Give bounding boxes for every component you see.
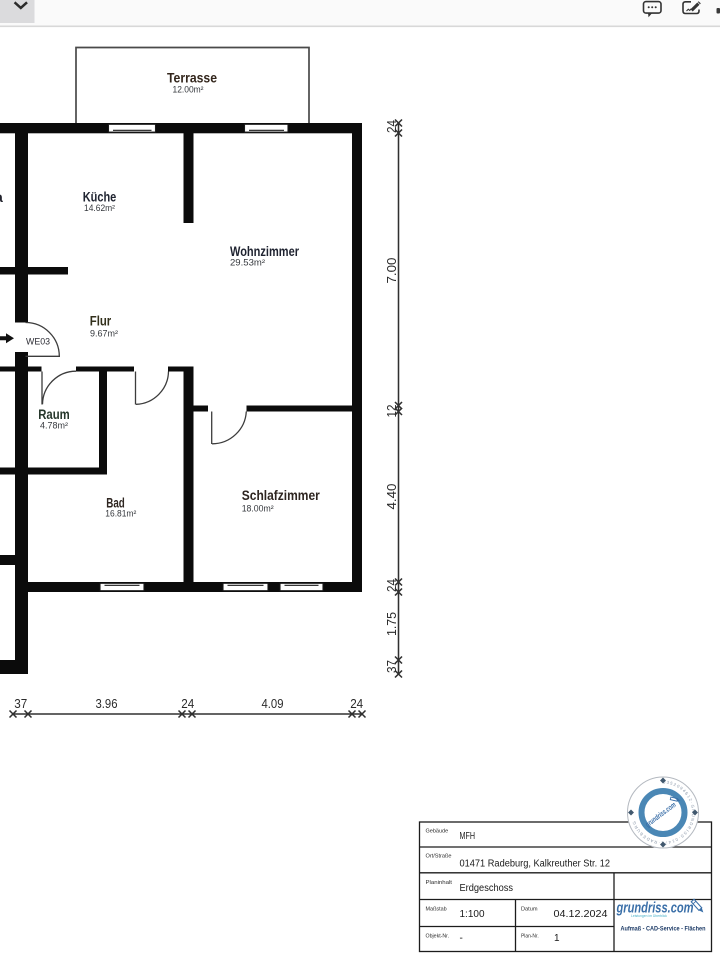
svg-text:4.09: 4.09 bbox=[262, 697, 284, 711]
svg-text:Maßstab: Maßstab bbox=[426, 907, 447, 913]
svg-text:24: 24 bbox=[350, 697, 363, 711]
svg-text:Aufmaß - CAD-Service - Flächen: Aufmaß - CAD-Service - Flächen bbox=[621, 926, 706, 933]
svg-text:WE03: WE03 bbox=[26, 337, 50, 347]
svg-text:4.40: 4.40 bbox=[385, 483, 399, 509]
svg-text:9.67m²: 9.67m² bbox=[90, 328, 118, 338]
svg-text:29.53m²: 29.53m² bbox=[230, 258, 265, 268]
svg-text:-: - bbox=[460, 933, 463, 944]
svg-text:Terrasse: Terrasse bbox=[167, 69, 217, 85]
svg-text:12: 12 bbox=[385, 404, 399, 417]
svg-text:04.12.2024: 04.12.2024 bbox=[554, 909, 608, 920]
svg-text:Gebäude: Gebäude bbox=[426, 829, 449, 835]
svg-text:24: 24 bbox=[385, 120, 399, 133]
svg-text:1: 1 bbox=[554, 933, 560, 944]
svg-text:Planinhalt: Planinhalt bbox=[426, 880, 453, 886]
svg-text:Leistungen im Überblick: Leistungen im Überblick bbox=[631, 914, 667, 918]
svg-text:Ort/Straße: Ort/Straße bbox=[426, 854, 452, 860]
svg-text:16.81m²: 16.81m² bbox=[105, 508, 136, 518]
svg-text:Plan-Nr.: Plan-Nr. bbox=[521, 934, 539, 940]
svg-text:7.00: 7.00 bbox=[385, 257, 399, 283]
svg-text:14.62m²: 14.62m² bbox=[84, 203, 115, 213]
svg-text:Flur: Flur bbox=[90, 313, 112, 329]
svg-text:24: 24 bbox=[181, 697, 194, 711]
svg-text:3.96: 3.96 bbox=[96, 697, 118, 711]
svg-text:Objekt-Nr.: Objekt-Nr. bbox=[426, 934, 450, 940]
svg-text:a: a bbox=[0, 189, 3, 205]
svg-text:MFH: MFH bbox=[460, 831, 476, 842]
svg-text:Datum: Datum bbox=[521, 907, 538, 913]
svg-text:Erdgeschoss: Erdgeschoss bbox=[460, 883, 514, 894]
svg-text:12.00m²: 12.00m² bbox=[173, 85, 204, 95]
svg-text:Wohnzimmer: Wohnzimmer bbox=[230, 243, 299, 259]
svg-text:1.75: 1.75 bbox=[385, 612, 399, 636]
svg-text:Schlafzimmer: Schlafzimmer bbox=[242, 487, 320, 503]
svg-text:37: 37 bbox=[385, 660, 399, 673]
svg-text:1:100: 1:100 bbox=[460, 909, 485, 920]
svg-text:18.00m²: 18.00m² bbox=[242, 503, 274, 513]
svg-text:01471 Radeburg, Kalkreuther St: 01471 Radeburg, Kalkreuther Str. 12 bbox=[460, 859, 611, 870]
svg-text:24: 24 bbox=[385, 579, 399, 592]
svg-text:37: 37 bbox=[14, 697, 27, 711]
svg-text:4.78m²: 4.78m² bbox=[40, 420, 68, 430]
